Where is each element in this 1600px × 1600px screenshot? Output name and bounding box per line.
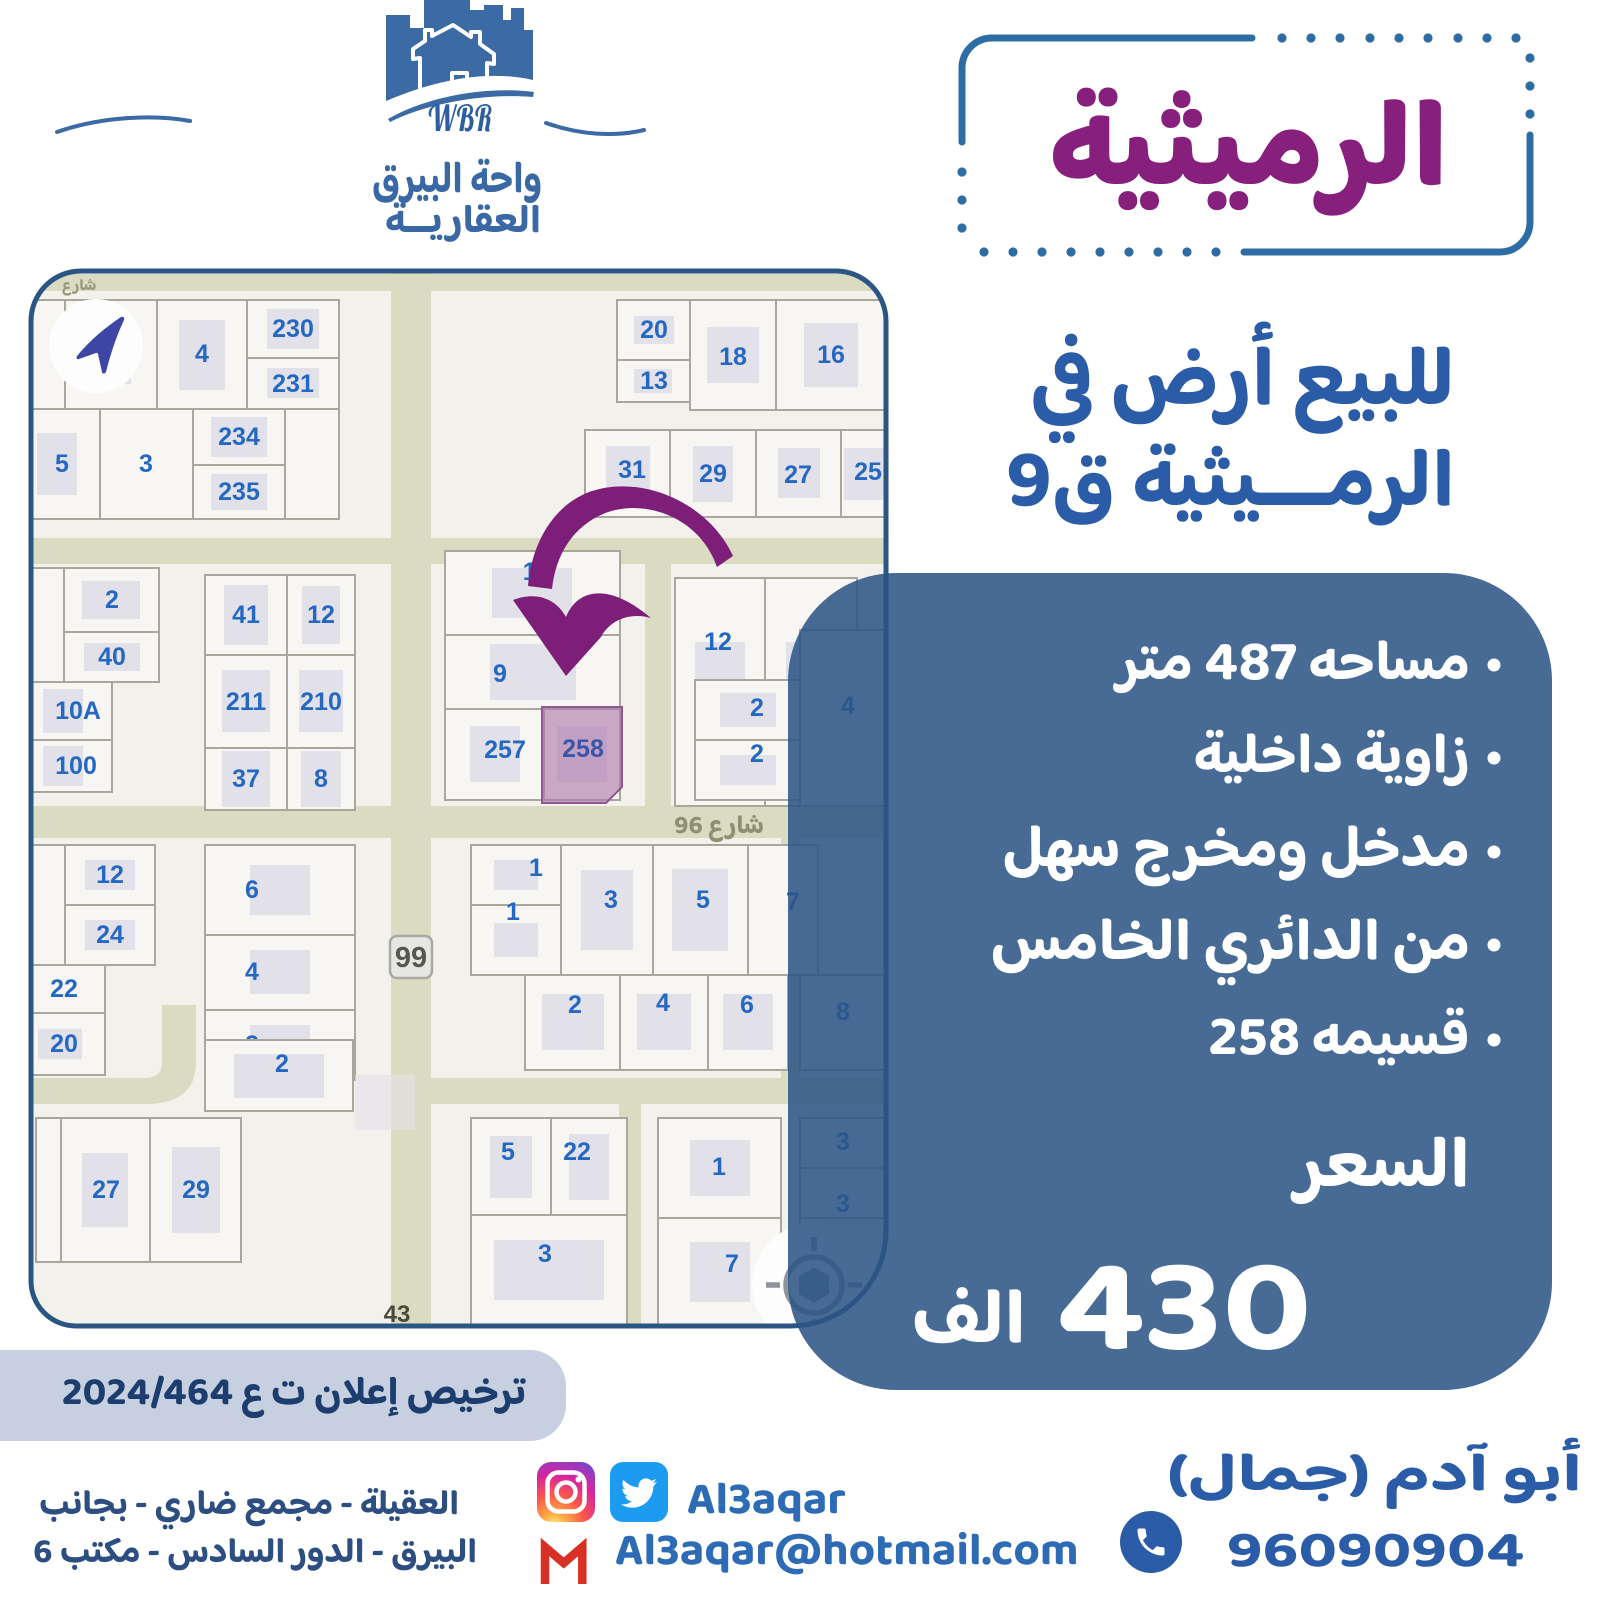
svg-text:5: 5 — [55, 450, 69, 478]
svg-text:5: 5 — [501, 1138, 515, 1166]
svg-text:258: 258 — [562, 735, 604, 763]
svg-text:6: 6 — [740, 991, 754, 1019]
svg-text:3: 3 — [139, 450, 153, 478]
svg-text:27: 27 — [92, 1176, 120, 1204]
svg-text:4: 4 — [195, 340, 209, 368]
svg-text:12: 12 — [704, 628, 732, 656]
svg-text:9: 9 — [493, 660, 507, 688]
svg-text:4: 4 — [656, 989, 670, 1017]
svg-text:24: 24 — [96, 921, 124, 949]
svg-text:211: 211 — [226, 688, 266, 716]
svg-text:3: 3 — [604, 886, 618, 914]
svg-text:99: 99 — [395, 942, 427, 974]
svg-text:29: 29 — [699, 460, 727, 488]
svg-text:231: 231 — [272, 370, 314, 398]
svg-text:2: 2 — [105, 586, 119, 614]
svg-text:1: 1 — [712, 1153, 726, 1181]
svg-text:1: 1 — [529, 854, 543, 882]
svg-text:210: 210 — [300, 688, 342, 716]
svg-text:27: 27 — [784, 461, 812, 489]
svg-text:100: 100 — [55, 752, 97, 780]
svg-text:41: 41 — [232, 601, 260, 629]
svg-text:12: 12 — [307, 601, 335, 629]
svg-text:2: 2 — [750, 740, 764, 768]
svg-text:20: 20 — [50, 1030, 78, 1058]
svg-text:1: 1 — [506, 898, 520, 926]
svg-text:234: 234 — [218, 423, 260, 451]
svg-text:10A: 10A — [55, 697, 101, 725]
svg-text:8: 8 — [314, 765, 328, 793]
svg-text:7: 7 — [725, 1250, 739, 1278]
svg-text:2: 2 — [750, 694, 764, 722]
svg-text:13: 13 — [640, 367, 668, 395]
svg-text:2: 2 — [568, 991, 582, 1019]
svg-text:3: 3 — [538, 1240, 552, 1268]
svg-text:5: 5 — [696, 886, 710, 914]
svg-text:18: 18 — [719, 343, 747, 371]
svg-text:22: 22 — [563, 1138, 591, 1166]
svg-text:25: 25 — [854, 458, 882, 486]
svg-text:20: 20 — [640, 316, 668, 344]
svg-text:29: 29 — [182, 1176, 210, 1204]
svg-text:235: 235 — [218, 478, 260, 506]
svg-text:257: 257 — [484, 736, 526, 764]
svg-text:22: 22 — [50, 975, 78, 1003]
svg-text:16: 16 — [817, 341, 845, 369]
svg-text:230: 230 — [272, 315, 314, 343]
svg-text:6: 6 — [245, 876, 259, 904]
svg-text:12: 12 — [96, 861, 124, 889]
svg-text:40: 40 — [98, 643, 126, 671]
svg-text:4: 4 — [245, 958, 259, 986]
svg-text:37: 37 — [232, 765, 260, 793]
svg-text:2: 2 — [275, 1050, 289, 1078]
svg-text:31: 31 — [618, 456, 646, 484]
